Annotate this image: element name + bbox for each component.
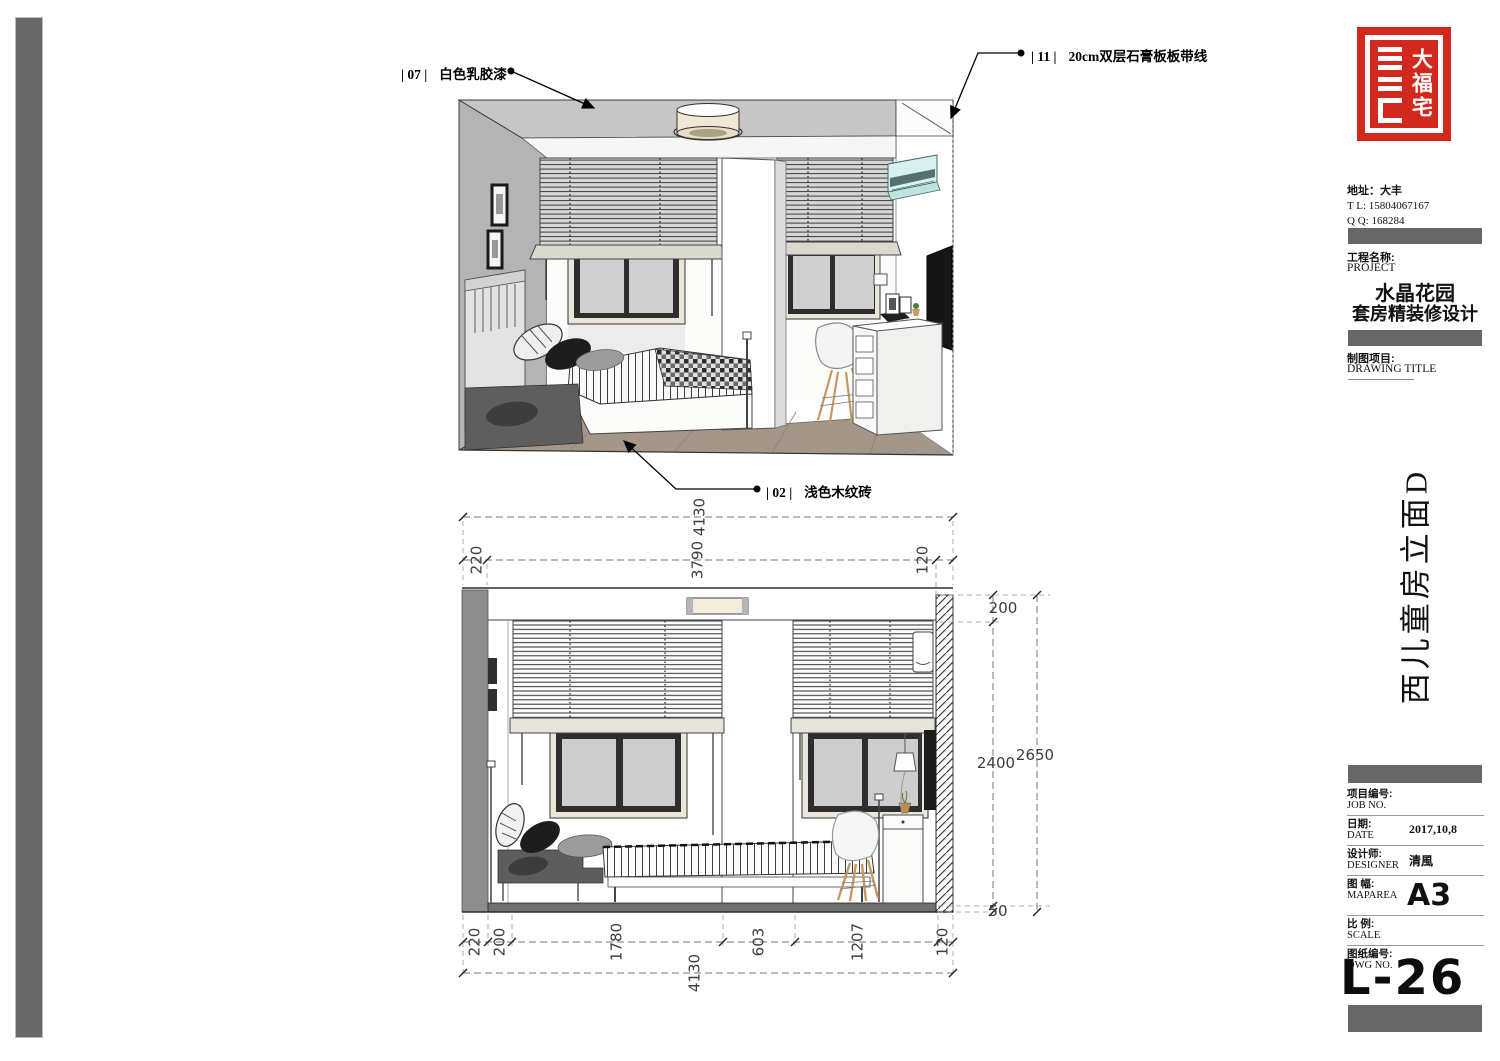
dim-bottom-5: 120 [934, 928, 952, 957]
callout-07-label: 白色乳胶漆 [439, 67, 507, 82]
pendant-lamp [674, 104, 742, 141]
dim-right-total: 2650 [1016, 746, 1054, 764]
field-value-maparea: A3 [1407, 878, 1451, 913]
dim-top-right: 120 [914, 546, 932, 575]
field-table: 项目编号: JOB NO. 日期: DATE 2017,10,8 设计师: DE… [1347, 786, 1484, 975]
drawing-label-en: DRAWING TITLE [1347, 363, 1436, 375]
divider-bar-3 [1348, 765, 1482, 783]
elevation-blinds-windows [510, 621, 936, 835]
elevation-drawing: 4130 220 3790 120 200 2400 2650 50 220 2… [450, 485, 1065, 1000]
dim-bottom-1: 200 [491, 928, 509, 957]
dim-bottom-4: 1207 [849, 923, 867, 961]
divider-bar-2 [1348, 330, 1482, 346]
field-label-en: SCALE [1347, 930, 1484, 942]
leader-dot-07 [508, 68, 515, 75]
callout-02: | 02 |浅色木纹砖 [766, 481, 872, 501]
contact-qq: Q Q: 168284 [1347, 214, 1429, 229]
seal-characters: 大福宅 [1410, 48, 1431, 120]
dim-top-total: 4130 [691, 498, 709, 536]
company-seal-logo: 大福宅 [1357, 27, 1451, 141]
contact-tel: T L: 15804067167 [1347, 199, 1429, 214]
field-label-en: JOB NO. [1347, 800, 1484, 812]
field-row-maparea: 图 幅: MAPAREA A3 [1347, 876, 1484, 916]
drawing-label-underline [1348, 379, 1414, 380]
dim-top-left: 220 [468, 546, 486, 575]
dim-bottom-total: 4130 [686, 954, 704, 992]
field-row-designer: 设计师: DESIGNER 清風 [1347, 846, 1484, 876]
field-label-cn: 项目编号: [1347, 788, 1484, 800]
callout-02-code: | 02 | [766, 485, 792, 500]
dim-right-room: 2400 [977, 754, 1015, 772]
render-3d-bedroom [450, 98, 965, 463]
callout-11: | 11 |20cm双层石膏板板带线 [1031, 45, 1207, 65]
contact-info: 地址：大丰 T L: 15804067167 Q Q: 168284 [1347, 184, 1429, 229]
field-value-date: 2017,10,8 [1409, 822, 1457, 837]
callout-07-code: | 07 | [401, 67, 427, 82]
left-margin-bar [15, 17, 43, 1038]
seal-glyph-icon [1377, 45, 1404, 123]
drawing-title-vertical: 西儿童房立面D [1391, 468, 1436, 704]
dim-right-floor: 50 [988, 902, 1007, 920]
dim-right-ceiling: 200 [989, 599, 1018, 617]
company-seal-inner: 大福宅 [1370, 40, 1438, 128]
field-value-designer: 清風 [1409, 852, 1433, 869]
elevation-pendant-lamp [687, 598, 748, 614]
field-label-cn: 比 例: [1347, 918, 1484, 930]
dim-bottom-3: 603 [750, 928, 768, 957]
divider-bar-1 [1348, 228, 1482, 244]
dim-bottom-2: 1780 [608, 923, 626, 961]
callout-11-label: 20cm双层石膏板板带线 [1068, 49, 1207, 64]
project-name-line2: 套房精装修设计 [1344, 300, 1486, 326]
divider-bar-4 [1348, 1005, 1482, 1032]
field-row-date: 日期: DATE 2017,10,8 [1347, 816, 1484, 846]
contact-address: 地址：大丰 [1347, 184, 1429, 199]
callout-11-code: | 11 | [1031, 49, 1056, 64]
project-label-en: PROJECT [1347, 262, 1396, 274]
dim-top-mid: 3790 [689, 541, 707, 579]
field-row-scale: 比 例: SCALE [1347, 916, 1484, 946]
callout-02-label: 浅色木纹砖 [804, 485, 872, 500]
field-row-job-no: 项目编号: JOB NO. [1347, 786, 1484, 816]
drawing-sheet: 4130 220 3790 120 200 2400 2650 50 220 2… [0, 0, 1500, 1061]
callout-07: | 07 |白色乳胶漆 [401, 63, 507, 83]
title-block: 大福宅 地址：大丰 T L: 15804067167 Q Q: 168284 工… [1340, 0, 1500, 1061]
dim-bottom-0: 220 [466, 928, 484, 957]
sheet-number: L-26 [1340, 950, 1465, 1006]
leader-dot-11 [1018, 50, 1025, 57]
